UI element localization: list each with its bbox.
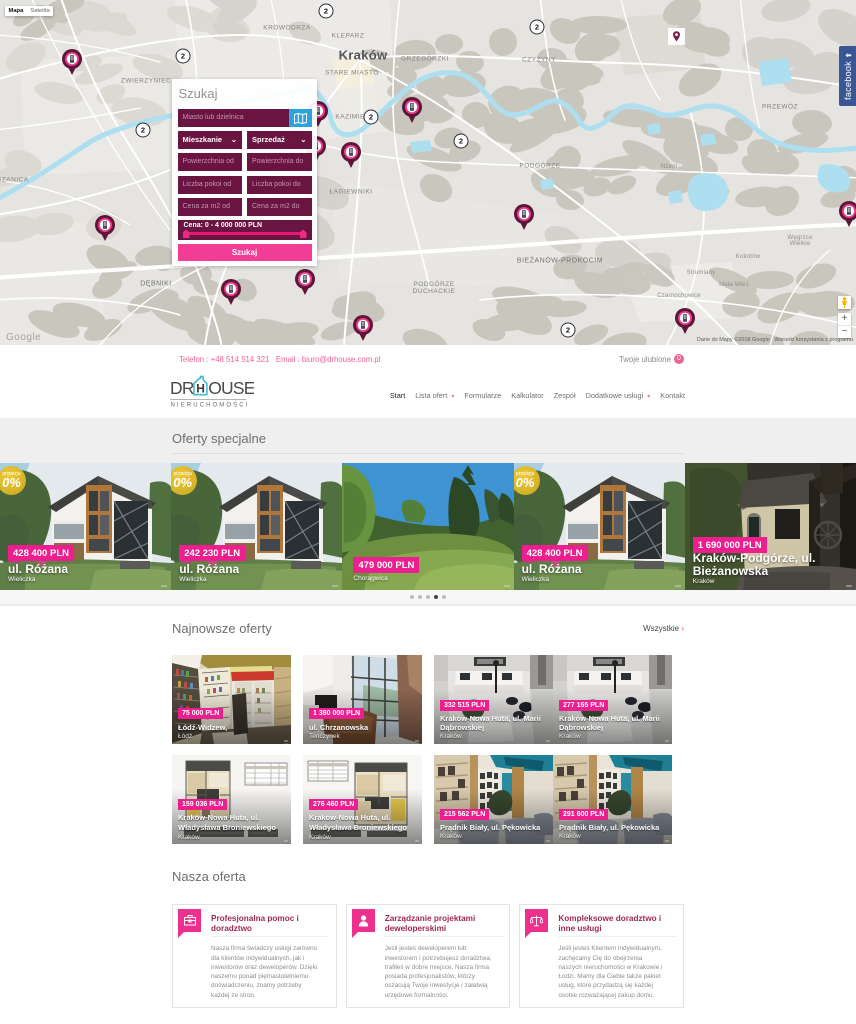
svg-text:DR: DR bbox=[546, 742, 553, 744]
svg-text:H: H bbox=[196, 381, 205, 395]
svg-text:DR: DR bbox=[284, 742, 291, 744]
svg-text:DR: DR bbox=[665, 842, 672, 844]
svg-text:DR: DR bbox=[284, 842, 291, 844]
svg-text:DR: DR bbox=[504, 588, 514, 590]
svg-text:DR: DR bbox=[546, 842, 553, 844]
svg-text:DR: DR bbox=[415, 742, 422, 744]
svg-text:OUSE: OUSE bbox=[208, 378, 254, 398]
svg-text:DR: DR bbox=[665, 742, 672, 744]
svg-text:DR: DR bbox=[846, 588, 856, 590]
svg-text:DR: DR bbox=[161, 588, 171, 590]
svg-text:NIERUCHOMOŚCI: NIERUCHOMOŚCI bbox=[171, 401, 250, 409]
svg-text:DR: DR bbox=[170, 378, 194, 398]
svg-text:DR: DR bbox=[675, 588, 685, 590]
svg-text:DR: DR bbox=[332, 588, 342, 590]
svg-text:DR: DR bbox=[415, 842, 422, 844]
